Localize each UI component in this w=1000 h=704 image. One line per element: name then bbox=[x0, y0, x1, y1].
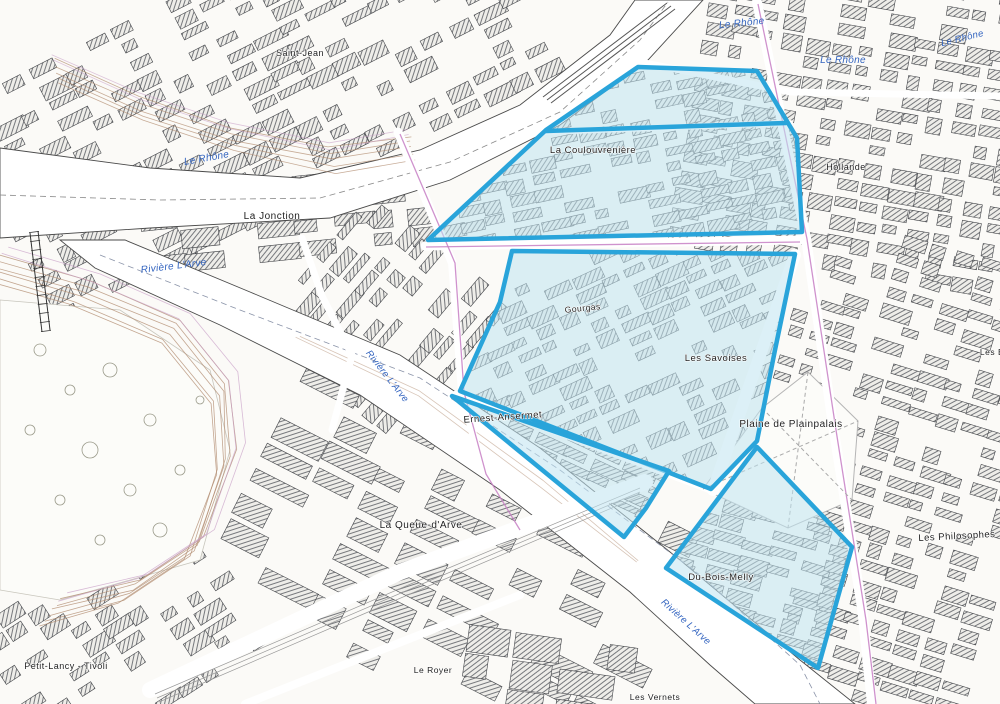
district-label: Saint-Jean bbox=[276, 48, 324, 58]
district-label: Hollande bbox=[826, 162, 866, 172]
district-label: Petit-Lancy - Tivoli bbox=[24, 661, 108, 671]
map-canvas[interactable]: Le RhôneLe RhôneLe RhôneLe RhôneRivière … bbox=[0, 0, 1000, 704]
district-label: La Coulouvrenière bbox=[550, 145, 636, 156]
district-label: La Jonction bbox=[244, 211, 301, 222]
district-label: Le Royer bbox=[414, 665, 453, 675]
district-label: Les Vernets bbox=[630, 692, 680, 702]
city-plan-map[interactable]: Le RhôneLe RhôneLe RhôneLe RhôneRivière … bbox=[0, 0, 1000, 704]
district-label: Du-Bois-Melly bbox=[688, 572, 754, 583]
river-label: Le Rhône bbox=[820, 55, 866, 66]
district-label: Plaine de Plainpalais bbox=[739, 419, 842, 430]
district-label: Les B bbox=[980, 347, 1000, 357]
district-label: La Queue-d'Arve bbox=[380, 520, 463, 531]
district-label: Les Savoises bbox=[685, 353, 748, 364]
